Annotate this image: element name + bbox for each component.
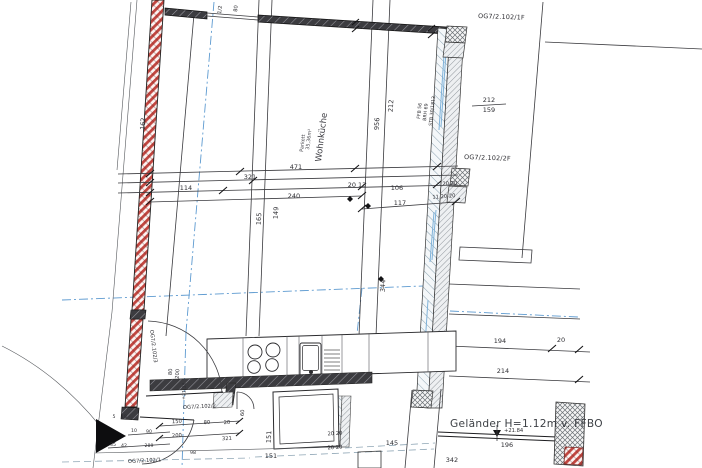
level-floor: +21,38 bbox=[181, 382, 188, 400]
dim-20-b: 20 bbox=[557, 336, 565, 344]
door-swing-3 bbox=[237, 392, 254, 409]
dim-214: 214 bbox=[497, 367, 509, 375]
dim-151-v: 151 bbox=[265, 430, 274, 443]
dim-80-k: 80 bbox=[203, 420, 210, 426]
kitchen-sink bbox=[300, 343, 321, 376]
dim-162: 162 bbox=[138, 117, 147, 130]
dim-20-13: 20 13 bbox=[348, 181, 367, 189]
kitchen-counter bbox=[207, 331, 456, 379]
dim-106: 106 bbox=[391, 184, 403, 192]
dim-18: 18 bbox=[121, 414, 127, 420]
dim-117: 117 bbox=[394, 199, 406, 207]
dim-door1-h: 200 bbox=[175, 369, 182, 379]
window-jamb-block-2 bbox=[443, 42, 465, 58]
dim-door1-w: 80 bbox=[168, 368, 175, 375]
masonry-block bbox=[564, 447, 583, 465]
bottom-lines bbox=[62, 389, 441, 468]
dim-90: 90 bbox=[146, 429, 152, 435]
dim-212-r: 212 bbox=[483, 96, 495, 104]
level-upper: +21.84 bbox=[504, 428, 524, 434]
left-wall-lower bbox=[125, 319, 143, 407]
railing-note: Geländer H=1.12m v. FFBO bbox=[450, 418, 603, 430]
ref-mid-right-2f: OG7/2.102/2F bbox=[464, 153, 511, 163]
dim-342: 342 bbox=[446, 456, 458, 464]
dim-289: 289 bbox=[145, 443, 154, 449]
dim-145: 145 bbox=[386, 439, 398, 447]
dim-344: 344 bbox=[379, 279, 388, 292]
dim-321-k: 321 bbox=[222, 436, 232, 443]
dim-20-k: 20 bbox=[223, 420, 230, 426]
dim-240: 240 bbox=[288, 192, 300, 200]
dim-151-h: 151 bbox=[265, 452, 277, 460]
top-wall bbox=[165, 8, 462, 35]
dim-471: 471 bbox=[290, 163, 302, 171]
dim-10: 10 bbox=[131, 428, 137, 434]
ref-top-right-1f: OG7/2.102/1F bbox=[478, 12, 525, 22]
dim-35: 35 bbox=[110, 442, 116, 448]
left-wall-upper bbox=[132, 0, 164, 310]
ref-kitchen-2: OG7/2.102/2 bbox=[183, 403, 216, 411]
window-annotation: FFB 56 BRH 69 STB 30/1813 bbox=[416, 96, 437, 126]
wall-note-b: 80 bbox=[233, 5, 240, 12]
floor-plan-drawing: Wohnküche 35,36m² Parkett OG7/2.102/1F O… bbox=[0, 0, 702, 468]
room-name: Wohnküche bbox=[314, 112, 330, 162]
site-boundary-lines bbox=[2, 0, 137, 468]
faucet-icon bbox=[309, 370, 313, 374]
dim-165: 165 bbox=[255, 212, 264, 225]
dim-956: 956 bbox=[373, 117, 382, 130]
dim-5: 5 bbox=[113, 414, 116, 420]
dim-98: 98 bbox=[190, 450, 196, 456]
dim-149: 149 bbox=[272, 206, 281, 219]
dim-150: 150 bbox=[172, 419, 182, 426]
ref-bottom-1: OG7/2.102/1 bbox=[128, 457, 161, 465]
dim-321: 321 bbox=[244, 173, 256, 181]
ref-left-wall-3: OG7/2.102/3 bbox=[148, 330, 158, 364]
dim-200: 200 bbox=[172, 433, 182, 440]
dim-159-r: 159 bbox=[483, 106, 495, 114]
room-label: Wohnküche 35,36m² Parkett bbox=[299, 112, 330, 162]
dim-door3-w: 60 bbox=[240, 409, 247, 416]
dim-20-20-jamb: 20 20 bbox=[442, 180, 457, 187]
window-jamb-block-1 bbox=[445, 26, 467, 43]
right-wall-end-block bbox=[411, 390, 433, 408]
wall-note-a: 1/2 bbox=[217, 5, 224, 14]
dim-196: 196 bbox=[501, 441, 513, 449]
floor-plan-canvas: Wohnküche 35,36m² Parkett OG7/2.102/1F O… bbox=[0, 0, 702, 468]
dim-212-v: 212 bbox=[387, 99, 396, 112]
dim-194: 194 bbox=[494, 337, 506, 345]
dim-114: 114 bbox=[180, 184, 192, 192]
dim-42: 42 bbox=[121, 443, 127, 449]
dim-20-20-b: 20 20 bbox=[327, 445, 342, 452]
door-jamb-upper bbox=[130, 310, 146, 319]
dim-20-20-a: 20 20 bbox=[327, 431, 342, 438]
